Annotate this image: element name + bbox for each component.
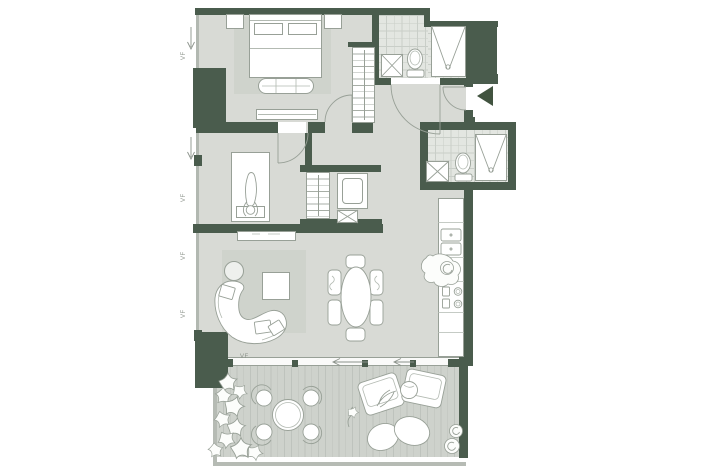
kitchen-plant bbox=[421, 254, 460, 287]
window-label: VF bbox=[181, 193, 187, 202]
terrace-lounge bbox=[346, 368, 463, 455]
floor-plan-canvas: VF VF VF VF VF bbox=[0, 0, 710, 473]
bathroom-1-fixtures bbox=[381, 27, 465, 77]
plan-overlay bbox=[0, 0, 710, 473]
window-label: VF bbox=[181, 51, 187, 60]
door-arcs bbox=[278, 85, 466, 163]
window-label: VF bbox=[240, 354, 249, 360]
window-swing-arrows bbox=[188, 27, 195, 159]
bathroom-2-fixtures bbox=[426, 135, 506, 182]
sliding-door-arrows bbox=[333, 359, 414, 366]
dining-set bbox=[328, 255, 383, 341]
sofa bbox=[215, 281, 287, 344]
terrace-dining-set bbox=[251, 385, 321, 445]
window-label: VF bbox=[181, 309, 187, 318]
window-label: VF bbox=[181, 251, 187, 260]
bench-seams bbox=[252, 79, 310, 234]
person-figure bbox=[243, 173, 257, 217]
utility-x-mark bbox=[337, 210, 358, 223]
